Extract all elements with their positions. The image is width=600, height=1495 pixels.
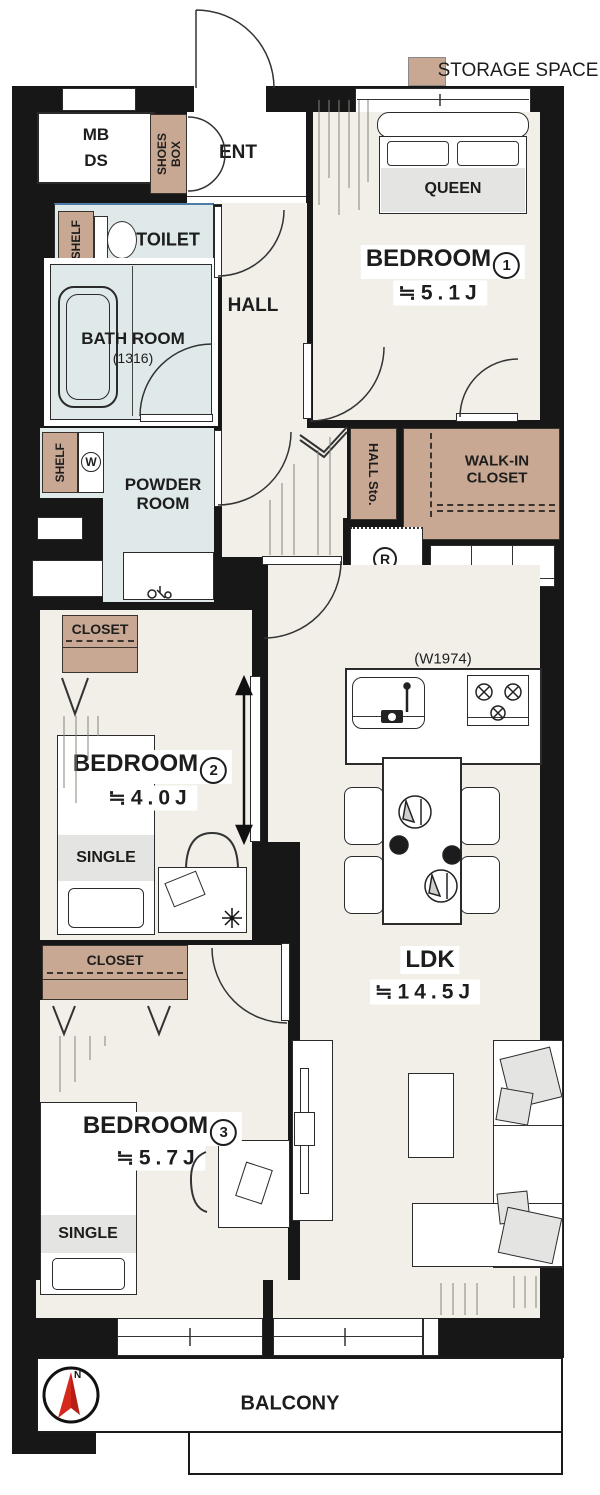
ent-double-door-arcs (188, 117, 225, 191)
wic-door-arc (460, 359, 518, 417)
bedroom3-door-arc (212, 948, 287, 1023)
bedroom3-hanger-1 (53, 1006, 75, 1034)
toilet-door-arc (218, 210, 284, 276)
powder-door-arc (218, 432, 291, 505)
bedroom1-door-arc (310, 347, 384, 421)
stove-burners (476, 684, 521, 720)
floor-hatching (60, 100, 536, 1315)
desk2-chair (186, 833, 238, 868)
hall-storage-bifold (300, 427, 347, 457)
desk3-chair (191, 1152, 207, 1212)
entrance-door-arc (196, 10, 274, 88)
bath-door-arc (140, 344, 212, 416)
window-ticks (190, 94, 440, 1346)
sliding-partition-arrow (237, 678, 251, 842)
compass-north-label: N (74, 1370, 81, 1381)
dining-plates (390, 796, 461, 902)
floor-plan: STORAGE SPACE MB DS SHOES BOX ENT HALL S… (0, 0, 600, 1495)
desk2-plant (222, 908, 242, 928)
compass: N (44, 1368, 98, 1422)
ldk-door-arc (264, 561, 341, 638)
plan-linework: N (0, 0, 600, 1495)
bedroom3-hanger-2 (148, 1006, 170, 1034)
washbasin-faucet (148, 586, 171, 598)
sink-faucet-lever (405, 684, 410, 713)
bedroom2-hanger (62, 678, 88, 714)
